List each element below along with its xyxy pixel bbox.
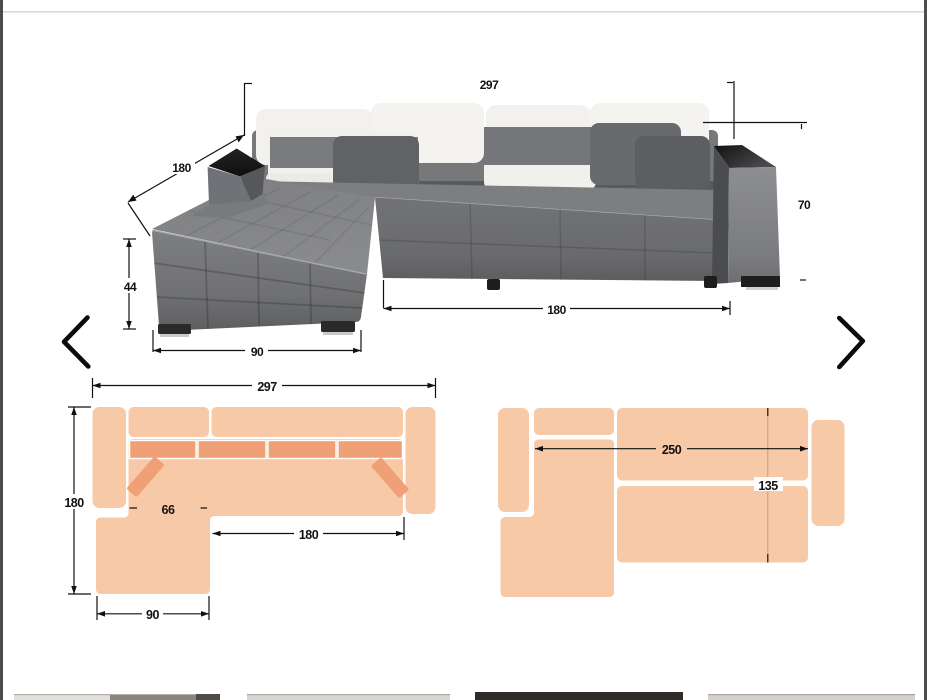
svg-text:44: 44 [124,280,137,294]
svg-text:180: 180 [299,528,319,542]
svg-text:180: 180 [547,303,566,317]
svg-text:297: 297 [257,380,277,394]
svg-text:90: 90 [146,608,159,622]
svg-text:180: 180 [64,496,84,510]
svg-text:70: 70 [798,198,811,212]
svg-text:90: 90 [251,345,264,359]
svg-text:297: 297 [480,78,499,92]
svg-text:66: 66 [162,503,175,517]
svg-text:250: 250 [662,443,682,457]
svg-text:135: 135 [758,479,778,493]
svg-text:180: 180 [172,161,191,175]
